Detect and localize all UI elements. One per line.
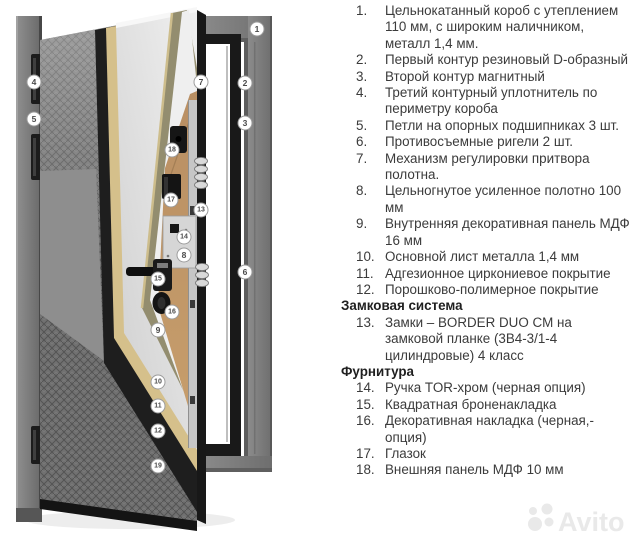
spec-item-text: Адгезионное циркониевое покрытие <box>385 266 632 282</box>
spec-item-number: 8. <box>338 183 385 199</box>
marker-number: 17 <box>167 197 175 204</box>
spec-item: 9.Внутренняя декоративная панель МДФ 16 … <box>338 216 632 249</box>
spec-item: 7.Механизм регулировки притвора полотна. <box>338 151 632 184</box>
marker-9: 9 <box>151 323 165 337</box>
marker-number: 9 <box>156 325 161 335</box>
spec-item-number: 2. <box>338 52 385 68</box>
spec-item-number: 14. <box>338 380 385 396</box>
avito-watermark: Avito <box>520 498 634 540</box>
marker-19: 19 <box>151 459 165 473</box>
marker-15: 15 <box>151 272 165 286</box>
spec-item-text: Внутренняя декоративная панель МДФ 16 мм <box>385 216 632 249</box>
marker-number: 2 <box>243 78 248 88</box>
spec-list: 1.Цельнокатанный короб с утеплением 110 … <box>338 3 632 479</box>
marker-5: 5 <box>27 112 41 126</box>
avito-logo-text: Avito <box>558 507 625 537</box>
spec-item-number: 13. <box>338 315 385 331</box>
spec-item-number: 3. <box>338 69 385 85</box>
spec-item-number: 6. <box>338 134 385 150</box>
spec-item: 2.Первый контур резиновый D-образный <box>338 52 632 68</box>
spec-item: 5.Петли на опорных подшипниках 3 шт. <box>338 118 632 134</box>
spec-item-number: 18. <box>338 462 385 478</box>
spec-item: 15.Квадратная броненакладка <box>338 397 632 413</box>
marker-14: 14 <box>177 230 191 244</box>
marker-8: 8 <box>177 248 191 262</box>
marker-4: 4 <box>27 75 41 89</box>
marker-11: 11 <box>151 399 165 413</box>
spec-item-number: 5. <box>338 118 385 134</box>
marker-6: 6 <box>238 265 252 279</box>
marker-1: 1 <box>250 22 264 36</box>
spec-item-text: Второй контур магнитный <box>385 69 632 85</box>
spec-item-text: Третий контурный уплотнитель по периметр… <box>385 85 632 118</box>
spec-item: 13.Замки – BORDER DUO CM на замковой пла… <box>338 315 632 364</box>
spec-item: 14.Ручка TOR-хром (черная опция) <box>338 380 632 396</box>
marker-17: 17 <box>164 193 178 207</box>
spec-item: 6.Противосъемные ригели 2 шт. <box>338 134 632 150</box>
spec-item-number: 11. <box>338 266 385 282</box>
marker-number: 13 <box>197 207 205 214</box>
spec-item: 1.Цельнокатанный короб с утеплением 110 … <box>338 3 632 52</box>
spec-item-number: 12. <box>338 282 385 298</box>
marker-number: 3 <box>243 118 248 128</box>
spec-item: 12.Порошково-полимерное покрытие <box>338 282 632 298</box>
door-frame-right <box>200 16 272 472</box>
marker-12: 12 <box>151 424 165 438</box>
spec-item: 3.Второй контур магнитный <box>338 69 632 85</box>
spec-item-text: Противосъемные ригели 2 шт. <box>385 134 632 150</box>
spec-item-number: 17. <box>338 446 385 462</box>
spec-item-text: Декоративная накладка (черная,- опция) <box>385 413 632 446</box>
spec-item: 11.Адгезионное циркониевое покрытие <box>338 266 632 282</box>
marker-2: 2 <box>238 76 252 90</box>
avito-logo-icon <box>528 504 554 532</box>
marker-number: 5 <box>32 114 37 124</box>
marker-16: 16 <box>165 305 179 319</box>
door-leaf <box>40 7 209 531</box>
marker-number: 18 <box>168 147 176 154</box>
spec-item-text: Цельнокатанный короб с утеплением 110 мм… <box>385 3 632 52</box>
marker-number: 1 <box>255 24 260 34</box>
spec-item-text: Основной лист металла 1,4 мм <box>385 249 632 265</box>
marker-number: 8 <box>182 250 187 260</box>
marker-number: 19 <box>154 463 162 470</box>
spec-item: 18.Внешняя панель МДФ 10 мм <box>338 462 632 478</box>
product-image: 12345678910111213141516171819 1.Цельнока… <box>0 0 634 540</box>
spec-item: 10.Основной лист металла 1,4 мм <box>338 249 632 265</box>
spec-item-text: Глазок <box>385 446 632 462</box>
marker-18: 18 <box>165 143 179 157</box>
marker-number: 6 <box>243 267 248 277</box>
spec-item-number: 16. <box>338 413 385 429</box>
spec-item-text: Внешняя панель МДФ 10 мм <box>385 462 632 478</box>
spec-item-text: Квадратная броненакладка <box>385 397 632 413</box>
spec-item-number: 1. <box>338 3 385 19</box>
marker-number: 12 <box>154 428 162 435</box>
spec-item-text: Ручка TOR-хром (черная опция) <box>385 380 632 396</box>
section-heading: Фурнитура <box>341 364 632 380</box>
spec-item-text: Замки – BORDER DUO CM на замковой планке… <box>385 315 632 364</box>
seal-contour <box>230 34 241 460</box>
spec-item-text: Механизм регулировки притвора полотна. <box>385 151 632 184</box>
marker-number: 10 <box>154 379 162 386</box>
marker-number: 16 <box>168 309 176 316</box>
spec-item: 4.Третий контурный уплотнитель по периме… <box>338 85 632 118</box>
spec-item: 16.Декоративная накладка (черная,- опция… <box>338 413 632 446</box>
lock-bolts-lower <box>196 263 209 286</box>
spec-item-number: 7. <box>338 151 385 167</box>
spec-item-text: Первый контур резиновый D-образный <box>385 52 632 68</box>
marker-number: 14 <box>180 234 188 241</box>
marker-7: 7 <box>194 75 208 89</box>
spec-item-number: 10. <box>338 249 385 265</box>
spec-item-text: Порошково-полимерное покрытие <box>385 282 632 298</box>
marker-number: 15 <box>154 276 162 283</box>
spec-item: 17.Глазок <box>338 446 632 462</box>
marker-number: 4 <box>32 77 37 87</box>
marker-10: 10 <box>151 375 165 389</box>
spec-item-text: Петли на опорных подшипниках 3 шт. <box>385 118 632 134</box>
marker-number: 11 <box>154 403 162 410</box>
spec-item-number: 4. <box>338 85 385 101</box>
spec-item-text: Цельногнутое усиленное полотно 100 мм <box>385 183 632 216</box>
marker-number: 7 <box>199 77 204 87</box>
marker-13: 13 <box>194 203 208 217</box>
marker-3: 3 <box>238 116 252 130</box>
door-cutaway-diagram: 12345678910111213141516171819 <box>0 0 330 540</box>
section-heading: Замковая система <box>341 298 632 314</box>
spec-item-number: 9. <box>338 216 385 232</box>
spec-item-number: 15. <box>338 397 385 413</box>
spec-item: 8.Цельногнутое усиленное полотно 100 мм <box>338 183 632 216</box>
